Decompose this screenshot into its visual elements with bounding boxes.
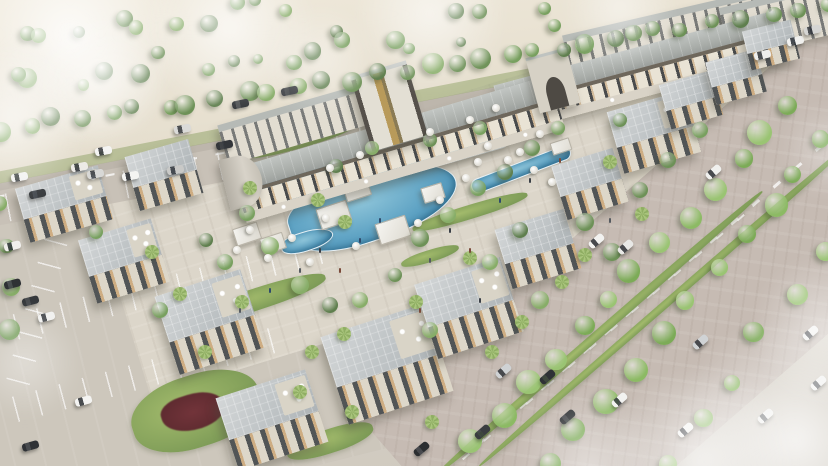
avenue-tree: [765, 193, 789, 217]
plaza-tree: [239, 205, 255, 221]
roadside-tree: [504, 45, 522, 63]
pedestrian-figure: [469, 248, 472, 253]
pedestrian-figure: [299, 268, 302, 273]
patio-umbrella: [484, 142, 492, 150]
palm-tree: [243, 181, 257, 195]
patio-umbrella: [306, 258, 314, 266]
patio-umbrella: [474, 158, 482, 166]
palm-tree: [235, 295, 249, 309]
pedestrian-figure: [529, 178, 532, 183]
patio-umbrella: [326, 164, 334, 172]
plaza-tree: [497, 164, 513, 180]
plaza-tree: [440, 207, 456, 223]
roadside-tree: [557, 43, 571, 57]
patio-umbrella: [288, 234, 296, 242]
desert-tree: [548, 19, 561, 32]
palm-tree: [198, 345, 212, 359]
pedestrian-figure: [379, 218, 382, 223]
plaza-tree: [551, 121, 565, 135]
palm-tree: [425, 415, 439, 429]
roadside-tree: [705, 14, 719, 28]
pedestrian-figure: [559, 158, 562, 163]
plaza-tree: [632, 182, 648, 198]
roadside-tree: [525, 43, 539, 57]
plaza-tree: [473, 121, 487, 135]
plaza-tree: [660, 152, 676, 168]
palm-tree: [578, 248, 592, 262]
pedestrian-figure: [339, 268, 342, 273]
patio-umbrella: [516, 148, 524, 156]
plaza-tree: [422, 322, 438, 338]
avenue-tree: [676, 291, 694, 309]
haze-patch: [260, 0, 380, 120]
roadside-tree: [790, 3, 806, 19]
plaza-tree: [470, 180, 486, 196]
plaza-tree: [291, 276, 309, 294]
patio-umbrella: [356, 151, 364, 159]
avenue-tree: [617, 259, 640, 282]
avenue-tree: [711, 259, 728, 276]
patio-umbrella: [504, 156, 512, 164]
avenue-tree: [735, 149, 753, 167]
palm-tree: [305, 345, 319, 359]
plaza-tree: [411, 229, 429, 247]
pedestrian-figure: [319, 248, 322, 253]
patio-umbrella: [466, 116, 474, 124]
patio-umbrella: [246, 226, 254, 234]
avenue-tree: [738, 225, 756, 243]
pedestrian-figure: [609, 218, 612, 223]
plaza-tree: [365, 141, 379, 155]
plaza-tree: [613, 113, 627, 127]
plaza-tree: [199, 233, 213, 247]
patio-umbrella: [233, 246, 241, 254]
architectural-rendering: [0, 0, 828, 466]
plaza-tree: [152, 302, 168, 318]
patio-umbrella: [536, 130, 544, 138]
patio-umbrella: [436, 196, 444, 204]
pedestrian-figure: [419, 308, 422, 313]
pedestrian-figure: [499, 198, 502, 203]
avenue-tree: [545, 349, 566, 370]
plaza-tree: [692, 122, 708, 138]
plaza-tree: [261, 237, 279, 255]
avenue-tree: [704, 178, 727, 201]
palm-tree: [311, 193, 325, 207]
pedestrian-figure: [449, 228, 452, 233]
palm-tree: [345, 405, 359, 419]
avenue-tree: [680, 207, 702, 229]
palm-tree: [485, 345, 499, 359]
pedestrian-figure: [429, 258, 432, 263]
pedestrian-figure: [239, 308, 242, 313]
patio-umbrella: [426, 128, 434, 136]
plaza-tree: [512, 222, 528, 238]
pedestrian-figure: [359, 238, 362, 243]
plaza-tree: [322, 297, 338, 313]
patio-umbrella: [264, 254, 272, 262]
plaza-tree: [482, 254, 498, 270]
palm-tree: [409, 295, 423, 309]
patio-umbrella: [530, 166, 538, 174]
roadside-tree: [766, 7, 781, 22]
patio-umbrella: [462, 174, 470, 182]
pedestrian-figure: [479, 298, 482, 303]
palm-tree: [145, 245, 159, 259]
pedestrian-figure: [269, 288, 272, 293]
palm-tree: [603, 155, 617, 169]
patio-umbrella: [548, 178, 556, 186]
avenue-tree: [652, 321, 676, 345]
plaza-tree: [352, 292, 368, 308]
patio-umbrella: [322, 214, 330, 222]
plaza-tree: [576, 213, 594, 231]
plaza-tree: [388, 268, 402, 282]
avenue-tree: [575, 316, 595, 336]
palm-tree: [635, 207, 649, 221]
palm-tree: [173, 287, 187, 301]
palm-tree: [293, 385, 307, 399]
patio-umbrella: [414, 219, 422, 227]
patio-umbrella: [492, 104, 500, 112]
palm-tree: [338, 215, 352, 229]
palm-tree: [337, 327, 351, 341]
plaza-tree: [531, 291, 549, 309]
plaza-tree: [524, 140, 540, 156]
patio-umbrella: [352, 242, 360, 250]
palm-tree: [463, 251, 477, 265]
haze-patch: [30, 10, 170, 150]
palm-tree: [555, 275, 569, 289]
plaza-tree: [217, 254, 233, 270]
roadside-tree: [732, 10, 749, 27]
palm-tree: [515, 315, 529, 329]
plaza-tree: [89, 225, 103, 239]
